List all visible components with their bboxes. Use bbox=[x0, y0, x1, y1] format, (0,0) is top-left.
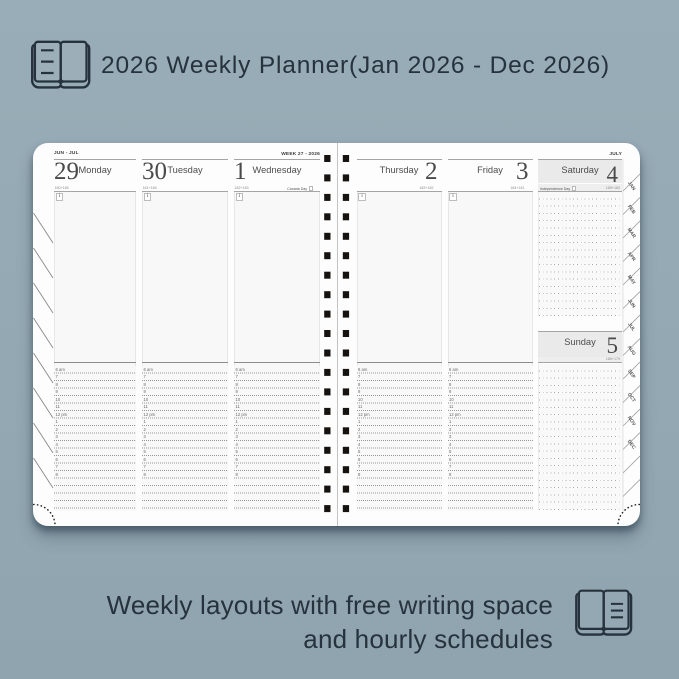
svg-text:JUL: JUL bbox=[626, 322, 636, 333]
